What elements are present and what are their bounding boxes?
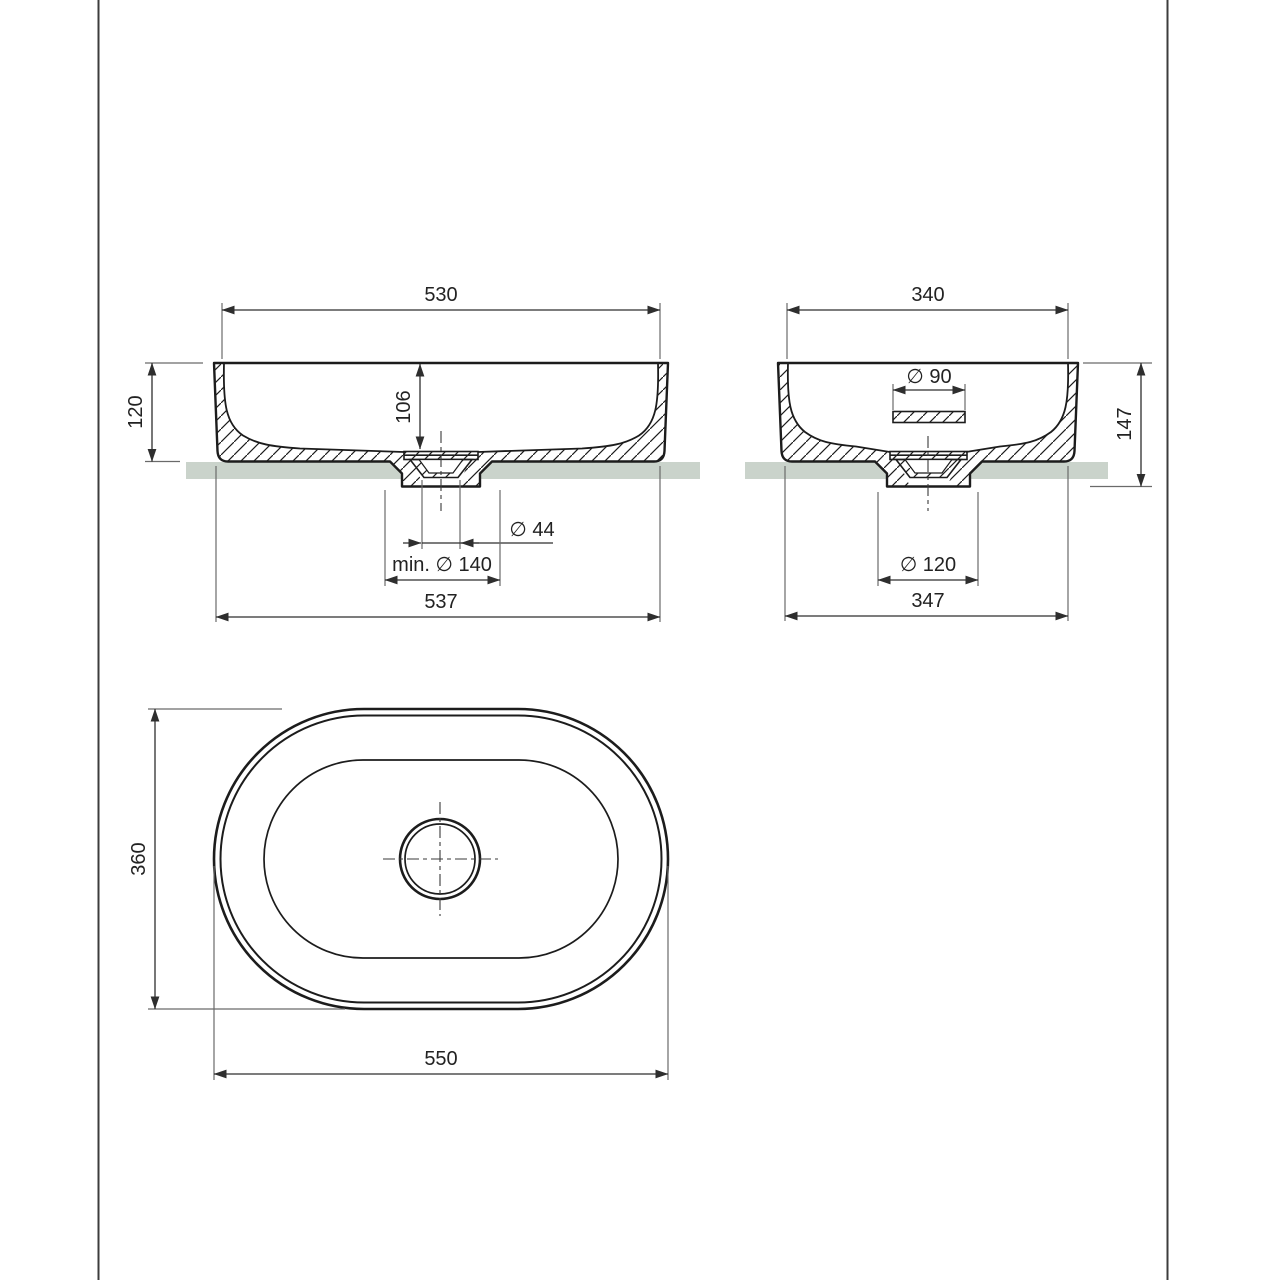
dimension-label: 340 xyxy=(911,284,944,306)
dimension-label: 106 xyxy=(393,390,415,423)
dimension-label: ∅ 90 xyxy=(906,366,951,388)
dimension-label: 147 xyxy=(1114,407,1136,440)
dim-side-recess: ∅ 120 xyxy=(878,492,978,586)
drawing-sheet: 530 120 106 ∅ 44 min. ∅ 140 xyxy=(0,0,1280,1280)
overflow-slot xyxy=(893,412,965,423)
dim-front-width-top: 530 xyxy=(222,284,660,359)
technical-drawing: 530 120 106 ∅ 44 min. ∅ 140 xyxy=(0,0,1280,1280)
dim-side-width-top: 340 xyxy=(787,284,1068,359)
front-view: 530 120 106 ∅ 44 min. ∅ 140 xyxy=(125,284,700,622)
side-view: 340 ∅ 90 147 ∅ 120 347 xyxy=(745,284,1152,621)
dimension-label: 120 xyxy=(125,395,147,428)
dimension-label: ∅ 120 xyxy=(900,554,956,576)
dim-front-drain: ∅ 44 xyxy=(403,480,555,549)
dim-front-height: 120 xyxy=(125,363,203,462)
dimension-label: 537 xyxy=(424,591,457,613)
top-view: 360 550 xyxy=(128,709,668,1080)
dim-front-min-recess: min. ∅ 140 xyxy=(385,490,500,586)
dim-front-width-bottom: 537 xyxy=(216,466,660,622)
dimension-label: 550 xyxy=(424,1048,457,1070)
dim-side-width-bottom: 347 xyxy=(785,466,1068,621)
dimension-label: min. ∅ 140 xyxy=(392,554,492,576)
dimension-label: ∅ 44 xyxy=(509,519,554,541)
dimension-label: 530 xyxy=(424,284,457,306)
dimension-label: 360 xyxy=(128,842,150,875)
dimension-label: 347 xyxy=(911,590,944,612)
